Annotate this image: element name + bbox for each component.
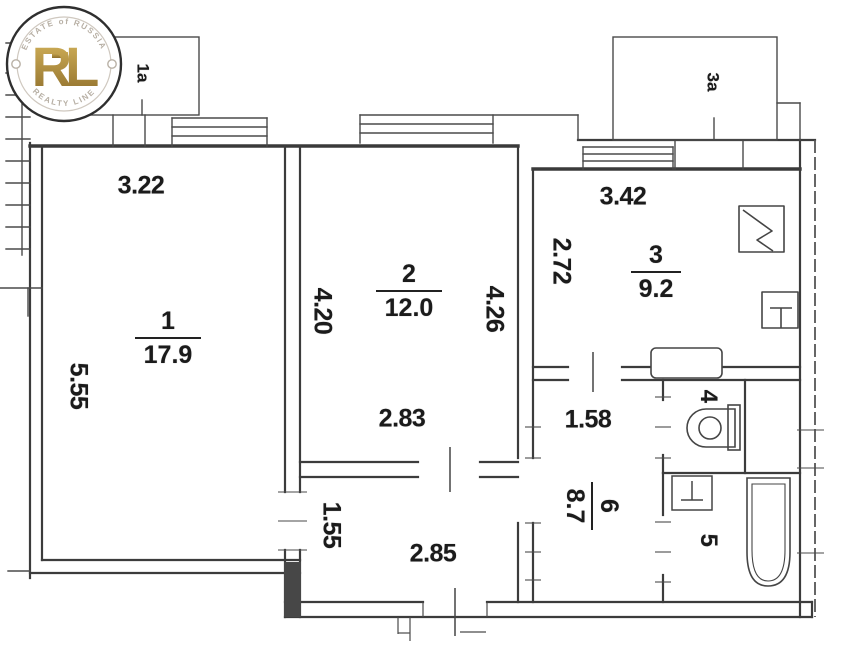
balcony-3a-label: 3a — [705, 73, 722, 92]
room1-fraction-line — [135, 337, 201, 339]
room2-fraction-line — [376, 290, 442, 292]
room6-number: 6 — [596, 499, 622, 513]
room6-label: 6 8.7 — [562, 482, 622, 530]
bathtub-icon — [747, 478, 790, 586]
stove-zigzag — [743, 210, 773, 251]
logo-left-dot — [12, 60, 20, 68]
room2-area: 12.0 — [385, 295, 434, 321]
room1-label: 1 17.9 — [135, 308, 201, 368]
room2-label: 2 12.0 — [376, 261, 442, 321]
dim-3-22: 3.22 — [118, 174, 165, 199]
room6-area: 8.7 — [562, 489, 588, 524]
room3-label: 3 9.2 — [631, 242, 681, 302]
room3-number: 3 — [649, 242, 663, 268]
room6-fraction-line — [591, 482, 593, 530]
room1-area: 17.9 — [144, 342, 193, 368]
kitchen-sink-icon — [762, 292, 798, 328]
vent-duct — [651, 348, 722, 378]
main-walls — [30, 146, 800, 169]
room1-number: 1 — [161, 308, 175, 334]
floorplan: 1a 3a 3.22 5.55 4.20 4.26 2.83 2.72 3.42… — [0, 0, 853, 658]
washbasin-icon — [672, 476, 712, 510]
entrance-details — [398, 602, 487, 641]
room4-label: 4 — [696, 390, 720, 403]
logo-monogram: RL — [32, 35, 98, 98]
dim-2-83: 2.83 — [379, 407, 426, 432]
realty-line-logo: ESTATE of RUSSIA REALTY LINE RL — [0, 0, 128, 128]
room5-label: 5 — [696, 534, 720, 547]
dim-1-55: 1.55 — [319, 502, 344, 549]
balcony-1a-label: 1a — [135, 64, 152, 83]
logo-right-dot — [108, 60, 116, 68]
dim-5-55: 5.55 — [66, 363, 91, 410]
dim-4-26: 4.26 — [482, 286, 507, 333]
dim-3-42: 3.42 — [600, 185, 647, 210]
toilet-icon — [687, 405, 740, 450]
dim-1-58: 1.58 — [565, 408, 612, 433]
wall-end-cap — [284, 562, 301, 617]
kitchen-fixtures — [739, 206, 798, 328]
wall-ticks — [278, 397, 824, 582]
room3-fraction-line — [631, 271, 681, 273]
dim-2-72: 2.72 — [549, 238, 574, 285]
dim-2-85: 2.85 — [410, 542, 457, 567]
dim-4-20: 4.20 — [310, 288, 335, 335]
room2-number: 2 — [402, 261, 416, 287]
room3-area: 9.2 — [639, 276, 674, 302]
balcony-3a-outline — [613, 37, 777, 140]
